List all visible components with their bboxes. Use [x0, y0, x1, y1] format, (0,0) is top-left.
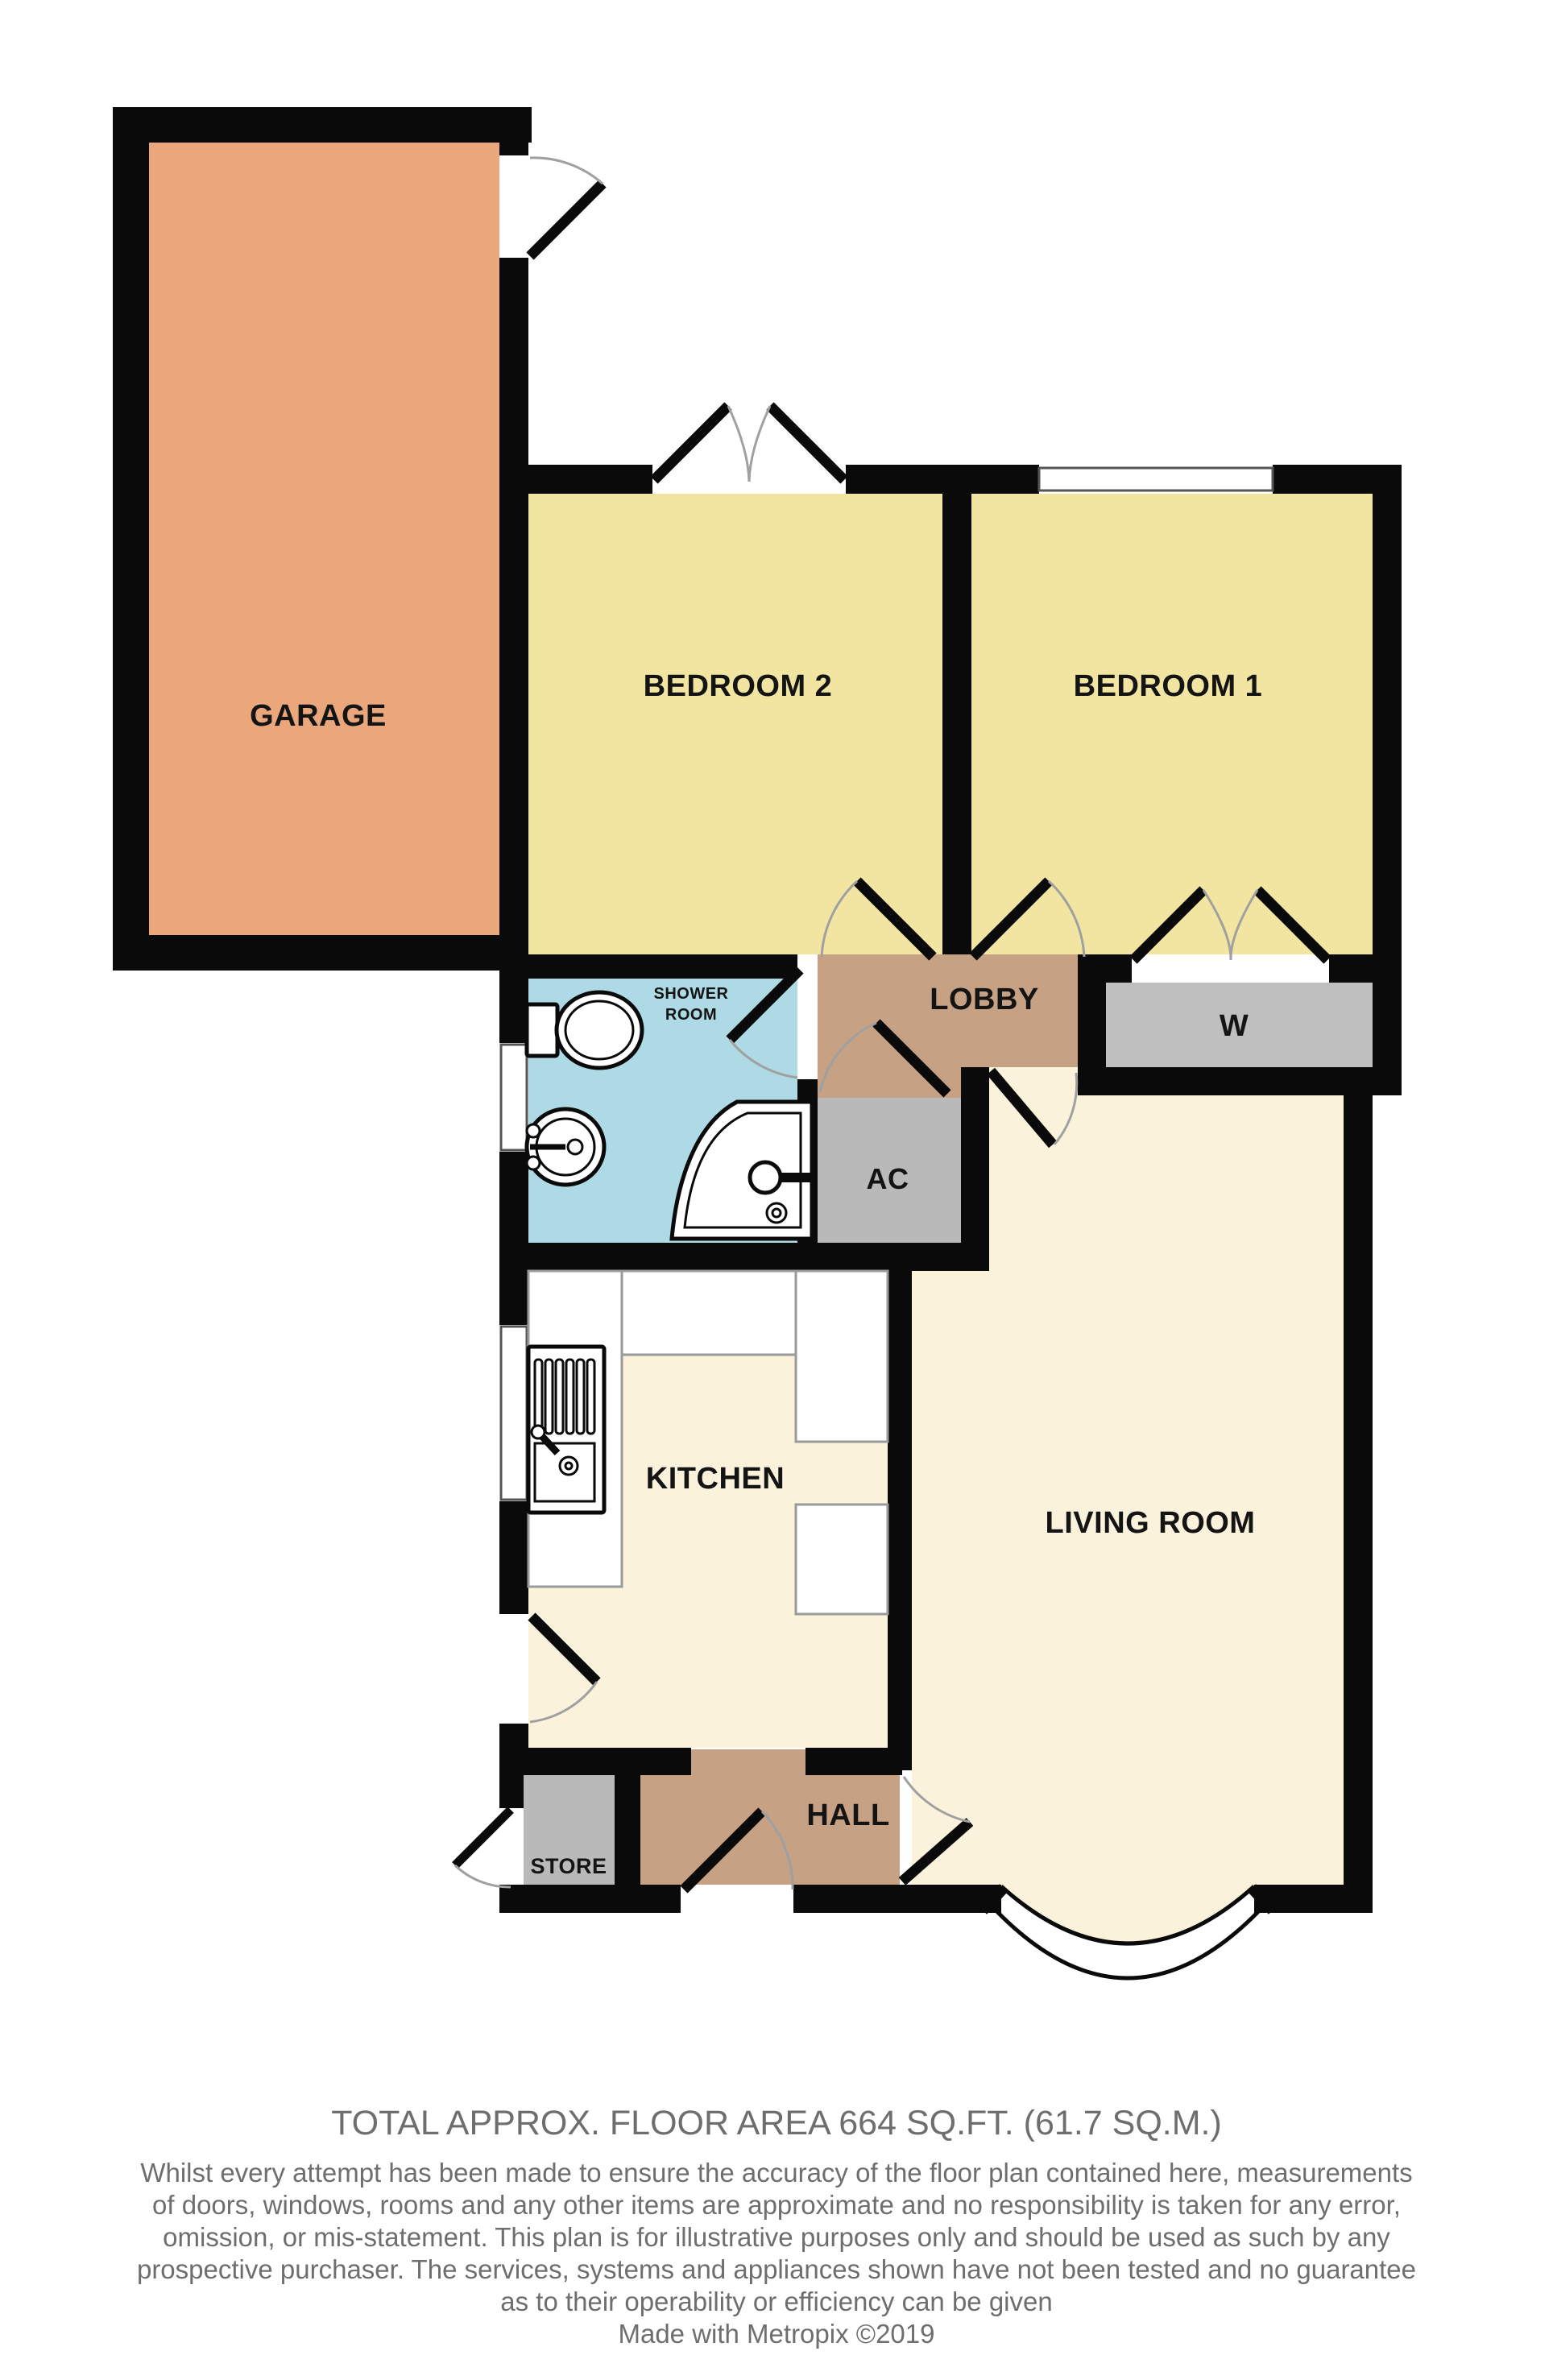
- kitchen-sink: [528, 1347, 604, 1513]
- label-shower-line1: SHOWER: [654, 985, 729, 1003]
- disclaimer-line-1: Whilst every attempt has been made to en…: [0, 2157, 1553, 2189]
- room-garage: [149, 143, 499, 935]
- label-garage: GARAGE: [250, 699, 387, 733]
- wall: [942, 465, 971, 954]
- toilet: [527, 992, 642, 1068]
- counter-appliance: [796, 1505, 888, 1614]
- wall: [499, 1501, 528, 1614]
- window-shower-room: [501, 1045, 527, 1150]
- disclaimer-block: Whilst every attempt has been made to en…: [0, 2157, 1553, 2350]
- wall: [499, 143, 528, 155]
- wall: [961, 1067, 989, 1260]
- room-hall-opening: [691, 1749, 805, 1764]
- wall: [499, 258, 528, 971]
- counter: [796, 1271, 888, 1442]
- label-shower-line2: ROOM: [665, 1006, 717, 1024]
- wall: [888, 1271, 912, 1770]
- wall: [113, 107, 532, 143]
- wall: [1344, 1095, 1373, 1913]
- wall: [499, 1885, 681, 1913]
- wall: [113, 107, 149, 971]
- wall: [805, 1748, 902, 1775]
- window-kitchen: [501, 1327, 527, 1500]
- floor-plan: GARAGE BEDROOM 2 BEDROOM 1 SHOWER ROOM L…: [0, 0, 1553, 2380]
- wall: [499, 1775, 524, 1808]
- credit-text: Made with Metropix ©2019: [0, 2318, 1553, 2350]
- room-living-upper: [989, 1095, 1344, 1271]
- wall: [793, 1885, 1001, 1913]
- basin: [527, 1109, 604, 1185]
- counter: [622, 1271, 796, 1355]
- wall: [499, 954, 528, 1043]
- room-fills: [149, 143, 1373, 1943]
- label-ac: AC: [867, 1162, 909, 1195]
- label-store: STORE: [530, 1854, 607, 1878]
- label-wardrobe: W: [1220, 1009, 1249, 1043]
- label-living-room: LIVING ROOM: [1046, 1506, 1256, 1540]
- label-lobby: LOBBY: [930, 983, 1039, 1016]
- label-bedroom-2: BEDROOM 2: [644, 669, 833, 703]
- wall: [1078, 954, 1106, 1067]
- disclaimer-line-2: of doors, windows, rooms and any other i…: [0, 2189, 1553, 2221]
- disclaimer-line-3: omission, or mis-statement. This plan is…: [0, 2221, 1553, 2254]
- wall: [499, 1152, 528, 1243]
- wall: [528, 465, 652, 494]
- store-door: [455, 1810, 511, 1887]
- wall: [499, 1271, 528, 1325]
- disclaimer-line-4: prospective purchaser. The services, sys…: [0, 2254, 1553, 2286]
- label-hall: HALL: [806, 1798, 889, 1832]
- bay-window-floor: [1001, 1877, 1254, 1943]
- wall: [1078, 1067, 1402, 1095]
- window-bedroom-1: [1039, 468, 1273, 490]
- room-living: [912, 1271, 1344, 1885]
- wall: [499, 1243, 989, 1271]
- label-bedroom-1: BEDROOM 1: [1074, 669, 1263, 703]
- bedroom-2-french-doors: [654, 406, 844, 482]
- wall: [528, 954, 797, 979]
- wall: [520, 1748, 691, 1775]
- wall: [971, 465, 1039, 494]
- wall: [615, 1775, 640, 1885]
- wall: [1273, 465, 1373, 494]
- room-bedroom-1: [971, 494, 1373, 954]
- garage-door: [530, 158, 603, 256]
- room-bedroom-2: [528, 494, 970, 954]
- wall: [1329, 954, 1373, 983]
- floorplan-page: GARAGE BEDROOM 2 BEDROOM 1 SHOWER ROOM L…: [0, 0, 1553, 2380]
- wall: [1373, 465, 1402, 1095]
- total-area-text: TOTAL APPROX. FLOOR AREA 664 SQ.FT. (61.…: [0, 2104, 1553, 2143]
- label-kitchen: KITCHEN: [646, 1462, 785, 1496]
- wall: [113, 935, 528, 971]
- disclaimer-line-5: as to their operability or efficiency ca…: [0, 2286, 1553, 2318]
